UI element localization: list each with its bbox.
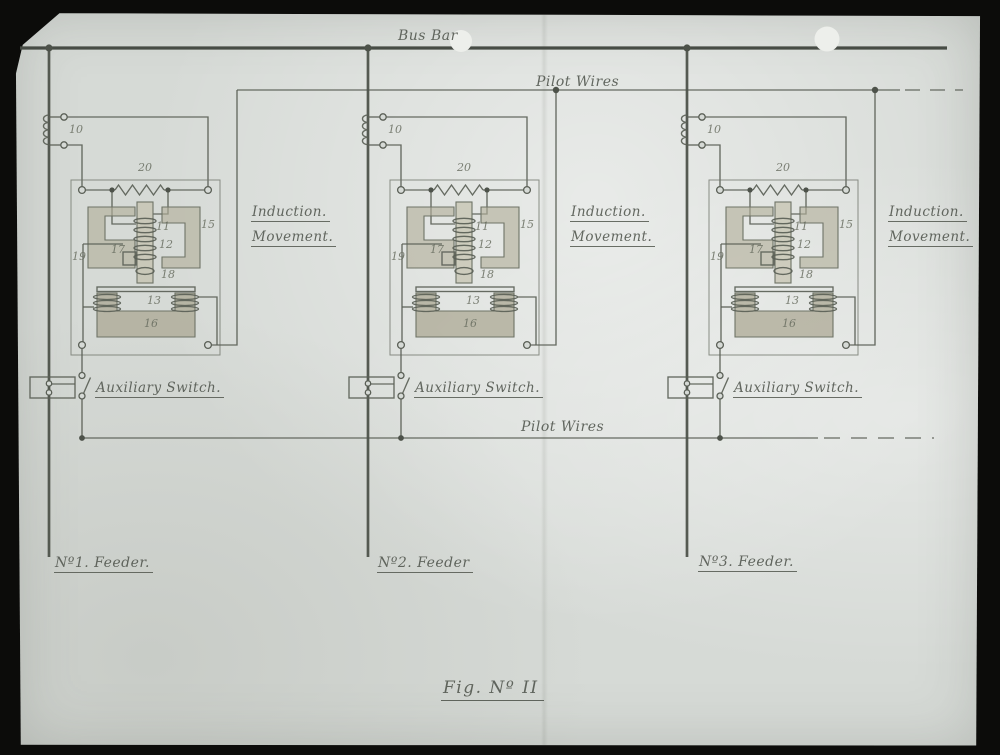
part-number-16: 16 xyxy=(782,317,796,330)
bus-bar-label: Bus Bar xyxy=(398,28,458,44)
part-number-resistor: 20 xyxy=(776,161,790,174)
part-number-15: 15 xyxy=(520,218,534,231)
feeder-label: Nº3. Feeder. xyxy=(698,554,797,572)
part-number-19: 19 xyxy=(710,250,724,263)
part-number-18: 18 xyxy=(480,268,494,281)
auxiliary-switch-label: Auxiliary Switch. xyxy=(414,380,543,398)
part-number-resistor: 20 xyxy=(138,161,152,174)
part-number-15: 15 xyxy=(839,218,853,231)
pilot-wires-bottom-label: Pilot Wires xyxy=(521,419,604,435)
unit-2-schematic xyxy=(349,44,556,557)
unit-1-schematic xyxy=(30,44,237,557)
part-number-12: 12 xyxy=(797,238,811,251)
induction-movement-label: Induction. Movement. xyxy=(570,204,655,254)
part-number-19: 19 xyxy=(72,250,86,263)
unit-3-schematic xyxy=(668,44,875,557)
part-number-11: 11 xyxy=(475,220,489,233)
part-number-series-coil: 10 xyxy=(707,123,721,136)
part-number-17: 17 xyxy=(111,243,125,256)
part-number-16: 16 xyxy=(463,317,477,330)
part-number-18: 18 xyxy=(161,268,175,281)
auxiliary-switch-label: Auxiliary Switch. xyxy=(733,380,862,398)
pilot-junction-dot xyxy=(872,87,878,93)
induction-movement-label: Induction. Movement. xyxy=(888,204,973,254)
part-number-16: 16 xyxy=(144,317,158,330)
part-number-11: 11 xyxy=(794,220,808,233)
part-number-17: 17 xyxy=(430,243,444,256)
part-number-15: 15 xyxy=(201,218,215,231)
pilot-wires-top-label: Pilot Wires xyxy=(536,74,619,90)
photo-blemish xyxy=(815,27,840,52)
part-number-13: 13 xyxy=(147,294,161,307)
part-number-resistor: 20 xyxy=(457,161,471,174)
part-number-series-coil: 10 xyxy=(69,123,83,136)
schematic-canvas xyxy=(0,0,1000,755)
auxiliary-switch-label: Auxiliary Switch. xyxy=(95,380,224,398)
part-number-19: 19 xyxy=(391,250,405,263)
part-number-12: 12 xyxy=(478,238,492,251)
part-number-11: 11 xyxy=(156,220,170,233)
feeder-label: Nº2. Feeder xyxy=(377,555,473,573)
lantern-slide-mount: Bus Bar Pilot Wires Pilot Wires 10 20 11… xyxy=(0,0,1000,755)
part-number-13: 13 xyxy=(466,294,480,307)
induction-movement-label: Induction. Movement. xyxy=(251,204,336,254)
feeder-label: Nº1. Feeder. xyxy=(54,555,153,573)
part-number-12: 12 xyxy=(159,238,173,251)
part-number-18: 18 xyxy=(799,268,813,281)
part-number-13: 13 xyxy=(785,294,799,307)
part-number-series-coil: 10 xyxy=(388,123,402,136)
part-number-17: 17 xyxy=(749,243,763,256)
figure-caption: Fig. Nº II xyxy=(441,678,544,701)
